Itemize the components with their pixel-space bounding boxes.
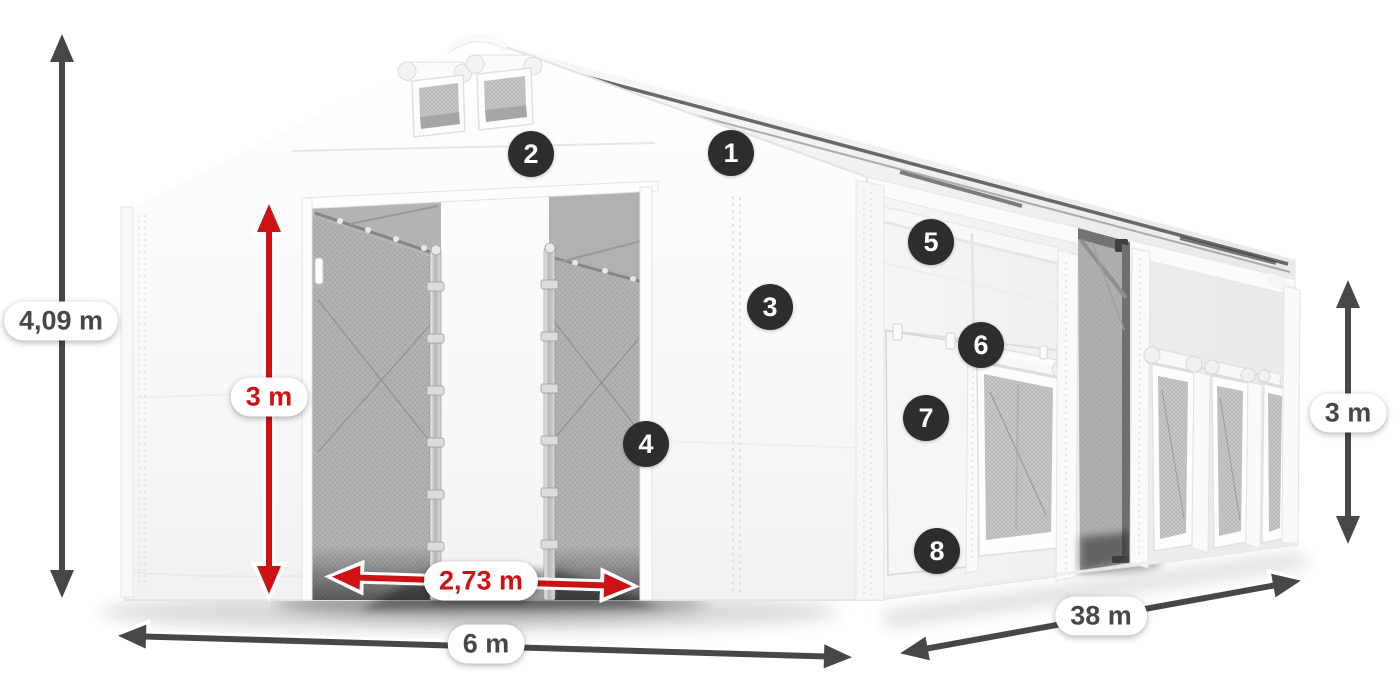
entrance-height-label: 3 m xyxy=(231,378,308,417)
marker-2-badge[interactable]: 2 xyxy=(508,131,554,177)
side-window xyxy=(967,336,1072,556)
marker-3-badge[interactable]: 3 xyxy=(747,284,793,330)
marker-7-badge[interactable]: 7 xyxy=(903,395,949,441)
side-doorway-open xyxy=(1078,228,1130,572)
marker-8-badge[interactable]: 8 xyxy=(914,528,960,574)
marker-6-badge[interactable]: 6 xyxy=(958,322,1004,368)
total-height-label: 4,09 m xyxy=(4,302,118,341)
entrance-width-label: 2,73 m xyxy=(424,562,538,601)
tent-dimension-diagram: 1 2 3 4 5 6 7 8 4,09 m 3 m 2,73 m 6 m 38… xyxy=(0,0,1400,700)
tent-illustration xyxy=(0,0,1400,700)
side-height-label: 3 m xyxy=(1310,394,1387,433)
marker-1-badge[interactable]: 1 xyxy=(708,130,754,176)
length-label: 38 m xyxy=(1055,597,1147,636)
width-label: 6 m xyxy=(448,625,525,664)
marker-4-badge[interactable]: 4 xyxy=(623,421,669,467)
marker-5-badge[interactable]: 5 xyxy=(908,219,954,265)
